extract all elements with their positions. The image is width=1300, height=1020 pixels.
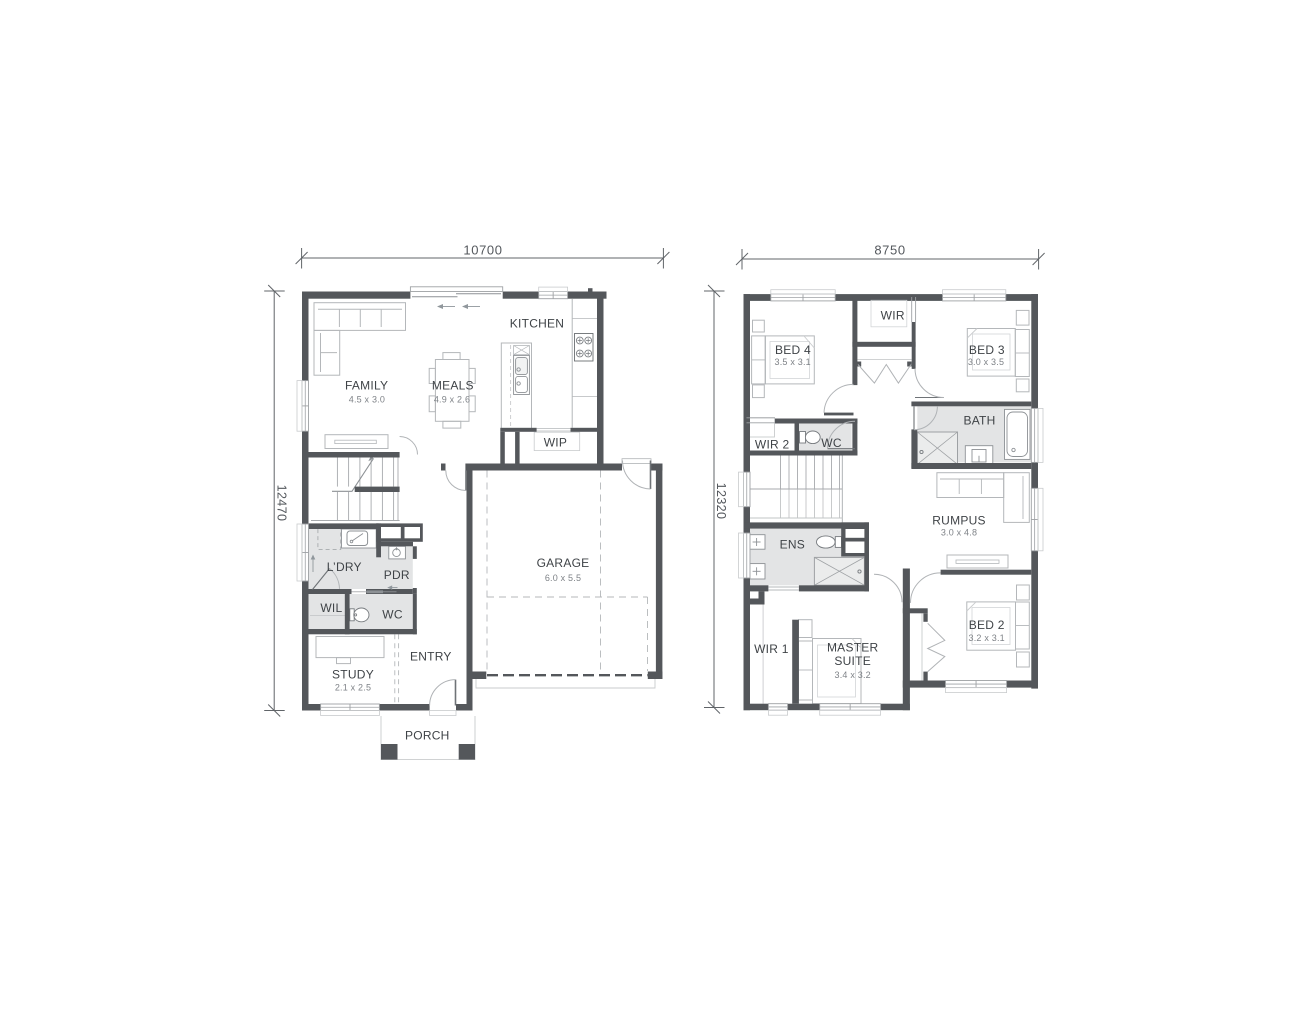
svg-text:ENTRY: ENTRY — [410, 650, 452, 664]
svg-text:STUDY: STUDY — [332, 667, 374, 681]
svg-text:WIR 1: WIR 1 — [754, 642, 789, 656]
svg-text:BED 4: BED 4 — [775, 343, 811, 357]
svg-text:BED 3: BED 3 — [969, 343, 1005, 357]
svg-text:4.5 x 3.0: 4.5 x 3.0 — [349, 395, 385, 405]
svg-text:WC: WC — [821, 436, 842, 450]
svg-text:PORCH: PORCH — [405, 728, 450, 742]
svg-text:L’DRY: L’DRY — [327, 560, 362, 574]
svg-text:PDR: PDR — [384, 568, 410, 582]
svg-text:3.5 x 3.1: 3.5 x 3.1 — [775, 357, 811, 367]
svg-text:12470: 12470 — [275, 485, 289, 522]
svg-text:ENS: ENS — [780, 537, 805, 551]
svg-text:WIL: WIL — [320, 601, 342, 615]
svg-text:6.0 x 5.5: 6.0 x 5.5 — [545, 573, 581, 583]
svg-text:FAMILY: FAMILY — [345, 379, 388, 393]
svg-text:3.0 x 4.8: 3.0 x 4.8 — [941, 528, 977, 538]
svg-text:MASTER: MASTER — [827, 640, 879, 654]
svg-text:WIP: WIP — [544, 435, 567, 449]
svg-text:3.2 x 3.1: 3.2 x 3.1 — [969, 633, 1005, 643]
svg-text:10700: 10700 — [463, 243, 502, 258]
svg-text:2.1 x 2.5: 2.1 x 2.5 — [335, 682, 371, 692]
svg-text:8750: 8750 — [874, 243, 905, 258]
svg-text:WIR 2: WIR 2 — [755, 438, 790, 452]
svg-text:WIR: WIR — [881, 309, 905, 323]
svg-text:KITCHEN: KITCHEN — [510, 316, 564, 330]
svg-text:3.0 x 3.5: 3.0 x 3.5 — [968, 357, 1004, 367]
svg-text:BATH: BATH — [963, 414, 995, 428]
svg-text:3.4 x 3.2: 3.4 x 3.2 — [835, 670, 871, 680]
svg-text:GARAGE: GARAGE — [537, 556, 590, 570]
svg-text:MEALS: MEALS — [432, 379, 474, 393]
svg-text:WC: WC — [382, 607, 403, 621]
svg-text:BED 2: BED 2 — [969, 618, 1005, 632]
svg-text:RUMPUS: RUMPUS — [932, 514, 986, 528]
svg-text:4.9 x 2.6: 4.9 x 2.6 — [434, 395, 470, 405]
svg-text:SUITE: SUITE — [834, 654, 871, 668]
svg-text:12320: 12320 — [714, 483, 728, 520]
